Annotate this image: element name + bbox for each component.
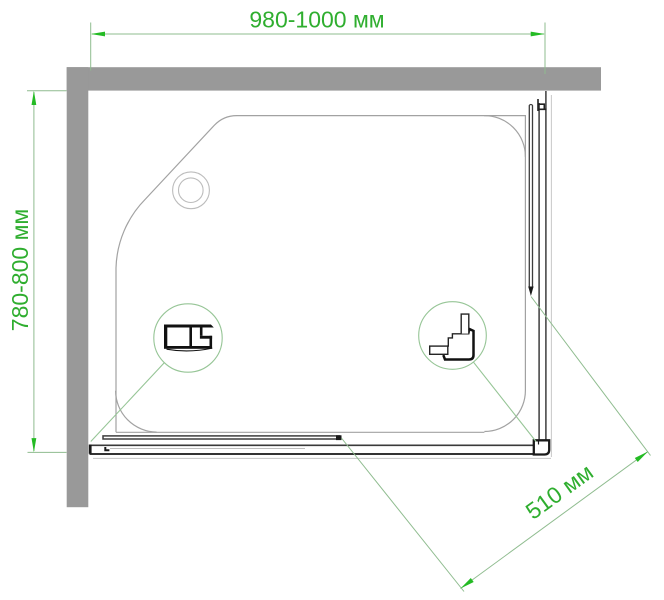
svg-text:780-800 мм: 780-800 мм (7, 209, 33, 331)
svg-text:510 мм: 510 мм (521, 459, 598, 525)
svg-text:980-1000 мм: 980-1000 мм (249, 7, 384, 33)
